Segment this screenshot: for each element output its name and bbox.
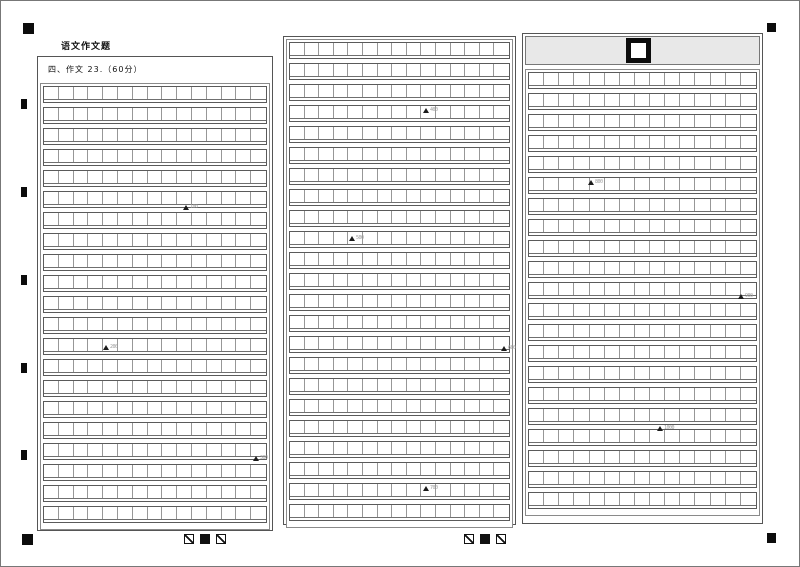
word-count-label: 600 (508, 346, 516, 351)
word-count-label: 800 (595, 180, 603, 185)
char-cell (529, 115, 544, 127)
char-cell (103, 507, 118, 519)
char-cell (363, 190, 378, 202)
char-cell (650, 94, 665, 106)
char-cell (650, 304, 665, 316)
char-cell (251, 150, 266, 162)
grid-row (528, 240, 757, 257)
char-cell (650, 409, 665, 421)
char-cell (148, 486, 163, 498)
char-cell (465, 442, 480, 454)
char-cell (177, 339, 192, 351)
char-cell (726, 136, 741, 148)
char-cell (590, 472, 605, 484)
char-cell (451, 295, 466, 307)
char-cell (392, 316, 407, 328)
char-cell (378, 190, 393, 202)
essay-grid-page-2: 400500600700 (286, 39, 513, 528)
char-cell (74, 402, 89, 414)
char-cell (590, 493, 605, 505)
char-cell (480, 337, 495, 349)
grid-row (289, 189, 510, 206)
char-cell (494, 295, 509, 307)
grid-row (528, 324, 757, 341)
char-cell (59, 150, 74, 162)
char-cell (574, 304, 589, 316)
char-cell (465, 232, 480, 244)
char-cell (363, 148, 378, 160)
char-cell (118, 297, 133, 309)
char-cell (392, 274, 407, 286)
char-cell (177, 150, 192, 162)
char-cell (378, 400, 393, 412)
char-cell (290, 43, 305, 55)
char-cell (290, 400, 305, 412)
char-cell (436, 85, 451, 97)
char-cell (162, 192, 177, 204)
char-cell (635, 409, 650, 421)
char-cell (741, 367, 756, 379)
char-cell (162, 423, 177, 435)
char-cell (559, 304, 574, 316)
char-cell (59, 360, 74, 372)
char-cell (88, 507, 103, 519)
char-cell (741, 325, 756, 337)
char-cell (363, 484, 378, 496)
char-cell (544, 157, 559, 169)
char-cell (665, 94, 680, 106)
char-cell (529, 409, 544, 421)
char-cell (378, 295, 393, 307)
char-cell (590, 409, 605, 421)
char-cell (162, 213, 177, 225)
word-count-label: 700 (430, 486, 438, 491)
char-cell (44, 108, 59, 120)
char-cell (605, 220, 620, 232)
char-cell (665, 304, 680, 316)
timing-mark (21, 275, 27, 285)
char-cell (88, 381, 103, 393)
char-cell (378, 337, 393, 349)
char-cell (305, 358, 320, 370)
char-cell (559, 472, 574, 484)
char-cell (635, 451, 650, 463)
char-cell (494, 106, 509, 118)
slashed-square-icon (184, 534, 194, 544)
char-cell (635, 73, 650, 85)
char-cell (574, 199, 589, 211)
char-cell (680, 94, 695, 106)
char-cell (726, 325, 741, 337)
char-cell (711, 94, 726, 106)
char-cell (236, 423, 251, 435)
char-cell (605, 241, 620, 253)
char-cell (451, 106, 466, 118)
char-cell (133, 171, 148, 183)
grid-row (43, 317, 267, 334)
char-cell (605, 283, 620, 295)
word-count-label: 100 (190, 205, 198, 210)
char-cell (494, 148, 509, 160)
char-cell (378, 274, 393, 286)
char-cell (451, 421, 466, 433)
char-cell (305, 400, 320, 412)
char-cell (133, 486, 148, 498)
char-cell (192, 171, 207, 183)
char-cell (334, 358, 349, 370)
char-cell (544, 367, 559, 379)
char-cell (251, 234, 266, 246)
char-cell (222, 360, 237, 372)
char-cell (207, 108, 222, 120)
char-cell (378, 211, 393, 223)
char-cell (665, 73, 680, 85)
char-cell (363, 505, 378, 517)
char-cell (665, 178, 680, 190)
char-cell (148, 108, 163, 120)
char-cell (251, 507, 266, 519)
char-cell (363, 211, 378, 223)
char-cell (162, 108, 177, 120)
char-cell (177, 213, 192, 225)
char-cell (177, 87, 192, 99)
char-cell (574, 94, 589, 106)
grid-row (528, 366, 757, 383)
char-cell (148, 171, 163, 183)
char-cell (103, 234, 118, 246)
slashed-square-icon (464, 534, 474, 544)
char-cell (650, 472, 665, 484)
char-cell (348, 421, 363, 433)
char-cell (741, 94, 756, 106)
char-cell (290, 148, 305, 160)
char-cell (192, 381, 207, 393)
char-cell (590, 451, 605, 463)
char-cell (305, 463, 320, 475)
timing-mark (21, 187, 27, 197)
char-cell (544, 199, 559, 211)
char-cell (680, 304, 695, 316)
char-cell (741, 409, 756, 421)
char-cell (236, 213, 251, 225)
char-cell (319, 190, 334, 202)
char-cell (44, 402, 59, 414)
char-cell (348, 505, 363, 517)
char-cell (363, 421, 378, 433)
char-cell (59, 507, 74, 519)
char-cell (407, 337, 422, 349)
grid-row (43, 170, 267, 187)
char-cell (590, 220, 605, 232)
char-cell (436, 64, 451, 76)
char-cell (392, 43, 407, 55)
char-cell (103, 381, 118, 393)
char-cell (251, 213, 266, 225)
char-cell (378, 106, 393, 118)
char-cell (494, 253, 509, 265)
char-cell (319, 253, 334, 265)
char-cell (363, 43, 378, 55)
char-cell (741, 472, 756, 484)
char-cell (88, 297, 103, 309)
char-cell (207, 150, 222, 162)
char-cell (650, 493, 665, 505)
char-cell (74, 507, 89, 519)
char-cell (236, 318, 251, 330)
char-cell (251, 255, 266, 267)
char-cell (103, 87, 118, 99)
char-cell (118, 339, 133, 351)
char-cell (451, 148, 466, 160)
char-cell (711, 157, 726, 169)
char-cell (363, 85, 378, 97)
char-cell (59, 108, 74, 120)
char-cell (711, 199, 726, 211)
char-cell (236, 507, 251, 519)
char-cell (711, 430, 726, 442)
char-cell (695, 409, 710, 421)
char-cell (665, 115, 680, 127)
char-cell (177, 192, 192, 204)
char-cell (465, 211, 480, 223)
char-cell (319, 232, 334, 244)
char-cell (665, 430, 680, 442)
grid-row (289, 252, 510, 269)
char-cell (451, 232, 466, 244)
char-cell (236, 87, 251, 99)
char-cell (162, 402, 177, 414)
char-cell (529, 325, 544, 337)
char-cell (348, 442, 363, 454)
char-cell (494, 232, 509, 244)
char-cell (88, 318, 103, 330)
char-cell (650, 178, 665, 190)
char-cell (334, 85, 349, 97)
char-cell (665, 367, 680, 379)
char-cell (665, 451, 680, 463)
header-bar (525, 36, 760, 65)
char-cell (711, 493, 726, 505)
char-cell (363, 400, 378, 412)
char-cell (620, 73, 635, 85)
char-cell (74, 276, 89, 288)
char-cell (421, 169, 436, 181)
exam-answer-sheet: 语文作文题 四、作文 23.（60分） 100200300 4005006007… (0, 0, 800, 567)
char-cell (319, 484, 334, 496)
char-cell (480, 400, 495, 412)
word-count-marker: 700 (423, 486, 438, 491)
char-cell (59, 444, 74, 456)
char-cell (305, 484, 320, 496)
char-cell (133, 108, 148, 120)
char-cell (480, 106, 495, 118)
char-cell (480, 85, 495, 97)
char-cell (363, 127, 378, 139)
char-cell (103, 465, 118, 477)
triangle-icon (183, 205, 189, 210)
registration-mark-top-right (767, 23, 776, 32)
char-cell (544, 136, 559, 148)
char-cell (407, 253, 422, 265)
char-cell (251, 360, 266, 372)
char-cell (494, 274, 509, 286)
char-cell (529, 304, 544, 316)
char-cell (192, 486, 207, 498)
char-cell (103, 171, 118, 183)
grid-row (43, 359, 267, 376)
char-cell (605, 409, 620, 421)
char-cell (177, 129, 192, 141)
char-cell (348, 316, 363, 328)
char-cell (290, 274, 305, 286)
char-cell (44, 213, 59, 225)
char-cell (605, 94, 620, 106)
char-cell (465, 379, 480, 391)
char-cell (590, 241, 605, 253)
char-cell (407, 400, 422, 412)
word-count-label: 400 (430, 108, 438, 113)
char-cell (162, 129, 177, 141)
char-cell (574, 115, 589, 127)
char-cell (421, 442, 436, 454)
char-cell (305, 127, 320, 139)
char-cell (711, 283, 726, 295)
char-cell (605, 199, 620, 211)
char-cell (74, 339, 89, 351)
char-cell (59, 465, 74, 477)
char-cell (118, 423, 133, 435)
char-cell (290, 64, 305, 76)
char-cell (162, 486, 177, 498)
char-cell (290, 484, 305, 496)
char-cell (494, 421, 509, 433)
char-cell (421, 421, 436, 433)
char-cell (465, 400, 480, 412)
char-cell (590, 73, 605, 85)
char-cell (635, 472, 650, 484)
char-cell (544, 241, 559, 253)
char-cell (421, 253, 436, 265)
char-cell (407, 211, 422, 223)
char-cell (348, 400, 363, 412)
char-cell (650, 220, 665, 232)
triangle-icon (501, 346, 507, 351)
char-cell (726, 388, 741, 400)
char-cell (207, 297, 222, 309)
char-cell (451, 43, 466, 55)
char-cell (103, 444, 118, 456)
char-cell (162, 150, 177, 162)
char-cell (620, 367, 635, 379)
char-cell (665, 136, 680, 148)
word-count-label: 1000 (664, 426, 674, 431)
char-cell (695, 388, 710, 400)
char-cell (251, 402, 266, 414)
char-cell (741, 493, 756, 505)
char-cell (319, 148, 334, 160)
char-cell (207, 381, 222, 393)
char-cell (133, 150, 148, 162)
char-cell (650, 262, 665, 274)
char-cell (222, 486, 237, 498)
char-cell (133, 402, 148, 414)
char-cell (44, 255, 59, 267)
char-cell (650, 451, 665, 463)
char-cell (680, 157, 695, 169)
char-cell (680, 472, 695, 484)
grid-row (43, 338, 267, 355)
char-cell (559, 409, 574, 421)
grid-row (43, 380, 267, 397)
char-cell (590, 346, 605, 358)
char-cell (378, 43, 393, 55)
char-cell (290, 463, 305, 475)
char-cell (494, 316, 509, 328)
grid-row (528, 345, 757, 362)
char-cell (741, 199, 756, 211)
char-cell (635, 157, 650, 169)
char-cell (451, 463, 466, 475)
char-cell (363, 463, 378, 475)
char-cell (480, 148, 495, 160)
grid-row (528, 450, 757, 467)
char-cell (590, 199, 605, 211)
char-cell (465, 148, 480, 160)
grid-row (43, 254, 267, 271)
char-cell (574, 346, 589, 358)
triangle-icon (349, 236, 355, 241)
grid-row (528, 492, 757, 509)
char-cell (650, 73, 665, 85)
char-cell (118, 402, 133, 414)
char-cell (319, 169, 334, 181)
char-cell (741, 220, 756, 232)
char-cell (407, 106, 422, 118)
char-cell (319, 127, 334, 139)
char-cell (741, 304, 756, 316)
char-cell (494, 127, 509, 139)
char-cell (103, 402, 118, 414)
char-cell (407, 232, 422, 244)
char-cell (695, 157, 710, 169)
char-cell (635, 241, 650, 253)
essay-grid-page-3: 8009001000 (525, 69, 760, 516)
char-cell (726, 493, 741, 505)
char-cell (741, 388, 756, 400)
char-cell (378, 232, 393, 244)
char-cell (207, 507, 222, 519)
char-cell (222, 87, 237, 99)
char-cell (74, 255, 89, 267)
char-cell (711, 73, 726, 85)
char-cell (451, 85, 466, 97)
char-cell (222, 339, 237, 351)
char-cell (290, 232, 305, 244)
char-cell (59, 234, 74, 246)
char-cell (148, 465, 163, 477)
char-cell (407, 505, 422, 517)
char-cell (334, 148, 349, 160)
char-cell (305, 148, 320, 160)
char-cell (222, 108, 237, 120)
char-cell (392, 337, 407, 349)
char-cell (650, 283, 665, 295)
char-cell (451, 316, 466, 328)
char-cell (88, 339, 103, 351)
char-cell (421, 400, 436, 412)
char-cell (529, 283, 544, 295)
char-cell (529, 493, 544, 505)
